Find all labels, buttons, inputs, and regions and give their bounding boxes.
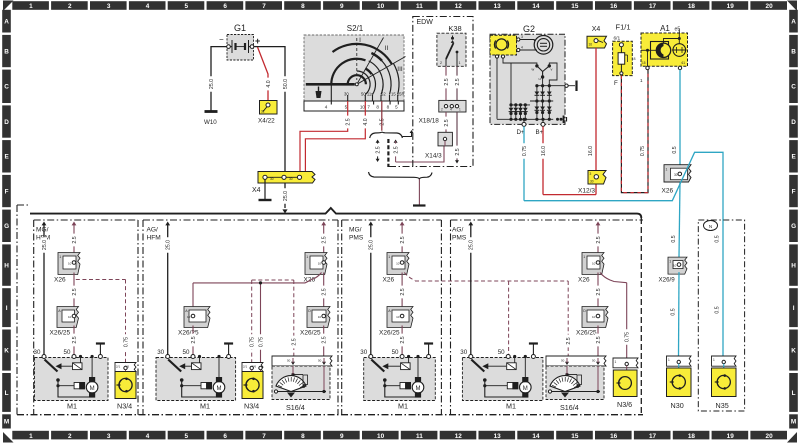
svg-text:1: 1: [388, 255, 390, 259]
svg-text:PMS: PMS: [452, 235, 467, 242]
svg-text:2: 2: [68, 3, 72, 10]
svg-text:X14/3: X14/3: [425, 153, 442, 160]
svg-text:2.5: 2.5: [292, 338, 298, 345]
svg-text:B: B: [791, 48, 796, 55]
svg-text:1: 1: [583, 255, 585, 259]
svg-text:X26: X26: [662, 188, 674, 195]
svg-text:0.5: 0.5: [715, 235, 721, 242]
svg-text:N: N: [709, 224, 712, 229]
svg-text:X4: X4: [592, 26, 601, 33]
svg-text:18: 18: [688, 433, 696, 440]
svg-text:0.75: 0.75: [258, 337, 264, 347]
svg-text:S2/1: S2/1: [347, 24, 364, 33]
svg-text:13: 13: [494, 3, 502, 10]
svg-text:16: 16: [610, 3, 618, 10]
svg-text:20: 20: [766, 433, 774, 440]
svg-text:D: D: [791, 119, 796, 126]
svg-text:X26/25: X26/25: [576, 330, 597, 337]
svg-text:2: 2: [441, 108, 443, 112]
svg-text:18: 18: [688, 3, 696, 10]
svg-text:7: 7: [367, 105, 370, 110]
svg-text:4.0: 4.0: [363, 118, 369, 125]
svg-text:10: 10: [396, 262, 400, 266]
svg-text:0.75: 0.75: [625, 332, 631, 342]
svg-text:F1/1: F1/1: [615, 23, 630, 32]
svg-text:1: 1: [29, 433, 33, 440]
svg-text:0.75: 0.75: [640, 146, 646, 156]
svg-text:16: 16: [610, 433, 618, 440]
svg-text:0.5: 0.5: [715, 306, 721, 313]
svg-text:PMS: PMS: [349, 235, 364, 242]
svg-text:4: 4: [146, 3, 150, 10]
svg-text:EDW: EDW: [417, 19, 434, 26]
svg-text:10: 10: [377, 433, 385, 440]
svg-text:30: 30: [344, 92, 349, 97]
svg-text:A: A: [791, 18, 796, 25]
svg-text:G2: G2: [523, 24, 535, 34]
svg-text:14: 14: [532, 3, 540, 10]
svg-text:M: M: [4, 419, 9, 426]
svg-text:1: 1: [59, 255, 61, 259]
svg-text:2.5: 2.5: [191, 336, 197, 343]
svg-text:19: 19: [727, 3, 735, 10]
svg-text:4: 4: [450, 108, 452, 112]
svg-text:G1: G1: [234, 23, 246, 33]
svg-text:25.0: 25.0: [283, 191, 289, 201]
svg-text:25.0: 25.0: [42, 240, 48, 250]
svg-text:II: II: [385, 45, 389, 52]
svg-text:2.5: 2.5: [72, 336, 78, 343]
svg-text:25.0: 25.0: [469, 240, 475, 250]
svg-text:5: 5: [185, 433, 189, 440]
svg-text:F: F: [792, 188, 796, 195]
svg-text:X26/25: X26/25: [50, 330, 71, 337]
svg-text:1: 1: [615, 360, 617, 364]
svg-text:25.0: 25.0: [209, 79, 215, 89]
svg-text:F: F: [5, 188, 9, 195]
svg-text:2.5: 2.5: [566, 337, 572, 344]
svg-text:S16/4: S16/4: [286, 403, 305, 412]
svg-text:3: 3: [107, 3, 111, 10]
svg-text:15 15R: 15 15R: [391, 92, 405, 97]
svg-text:2: 2: [68, 433, 72, 440]
svg-text:X26/9: X26/9: [659, 277, 676, 284]
svg-text:2.5: 2.5: [322, 236, 328, 243]
svg-text:6: 6: [223, 433, 227, 440]
svg-text:30: 30: [674, 173, 678, 177]
svg-text:X26: X26: [578, 277, 590, 284]
svg-text:M1: M1: [506, 402, 516, 411]
svg-text:25.0: 25.0: [369, 240, 375, 250]
svg-text:D: D: [308, 309, 311, 313]
svg-text:1: 1: [29, 3, 33, 10]
svg-text:10: 10: [68, 315, 72, 319]
svg-text:12: 12: [455, 3, 463, 10]
svg-text:5: 5: [395, 105, 398, 110]
svg-text:X26: X26: [54, 277, 66, 284]
svg-text:10: 10: [592, 315, 596, 319]
svg-text:2.5: 2.5: [400, 288, 406, 295]
svg-text:9: 9: [340, 3, 344, 10]
svg-text:1: 1: [306, 255, 308, 259]
svg-text:6: 6: [223, 3, 227, 10]
svg-text:N35: N35: [716, 401, 729, 410]
svg-text:D: D: [583, 309, 586, 313]
svg-text:1: 1: [640, 78, 643, 83]
svg-text:X26: X26: [383, 277, 395, 284]
svg-text:10: 10: [318, 315, 322, 319]
svg-text:50: 50: [498, 349, 505, 356]
svg-text:30: 30: [157, 349, 164, 356]
svg-text:3: 3: [521, 35, 523, 39]
svg-text:30: 30: [460, 349, 467, 356]
svg-text:2.5: 2.5: [72, 236, 78, 243]
svg-text:4: 4: [146, 433, 150, 440]
svg-text:10: 10: [673, 264, 677, 268]
svg-text:10: 10: [396, 315, 400, 319]
svg-text:2.5: 2.5: [380, 118, 386, 125]
svg-text:2.5: 2.5: [455, 148, 461, 155]
svg-text:16: 16: [589, 43, 593, 47]
svg-text:11: 11: [416, 3, 423, 10]
svg-text:2.5: 2.5: [393, 146, 399, 153]
svg-text:AG/: AG/: [452, 227, 464, 234]
svg-text:30: 30: [360, 349, 367, 356]
svg-text:2.5: 2.5: [400, 236, 406, 243]
svg-text:50: 50: [287, 359, 291, 363]
svg-text:2.5: 2.5: [444, 119, 450, 126]
svg-text:2.5: 2.5: [72, 288, 78, 295]
svg-text:2.5: 2.5: [596, 336, 602, 343]
svg-text:+: +: [255, 36, 260, 46]
svg-text:10: 10: [592, 262, 596, 266]
svg-text:2/1: 2/1: [243, 364, 248, 368]
svg-text:19: 19: [727, 433, 735, 440]
svg-text:4: 4: [325, 105, 328, 110]
svg-text:20: 20: [766, 3, 774, 10]
svg-text:6/1: 6/1: [614, 36, 621, 42]
svg-text:H: H: [4, 262, 9, 269]
svg-text:W10: W10: [204, 119, 217, 126]
svg-text:14: 14: [532, 433, 540, 440]
svg-text:0.75: 0.75: [522, 146, 528, 156]
svg-text:M1: M1: [67, 402, 77, 411]
svg-text:2.5: 2.5: [596, 288, 602, 295]
svg-text:X26/25: X26/25: [300, 330, 321, 337]
svg-text:M1: M1: [200, 402, 210, 411]
svg-text:8: 8: [301, 3, 305, 10]
svg-text:G: G: [791, 223, 796, 230]
svg-text:11: 11: [416, 433, 423, 440]
svg-text:X18/18: X18/18: [419, 118, 440, 125]
svg-text:1: 1: [669, 260, 671, 264]
svg-text:M: M: [523, 386, 528, 392]
svg-text:X4: X4: [252, 187, 261, 194]
svg-text:1: 1: [459, 108, 461, 112]
svg-text:0.5: 0.5: [671, 308, 677, 315]
svg-text:61: 61: [682, 61, 686, 65]
svg-text:8: 8: [301, 433, 305, 440]
svg-text:G: G: [4, 223, 9, 230]
svg-text:I: I: [359, 37, 361, 44]
svg-text:8: 8: [387, 105, 390, 110]
svg-text:2.5: 2.5: [322, 288, 328, 295]
svg-text:2.5: 2.5: [596, 236, 602, 243]
svg-text:15: 15: [571, 3, 579, 10]
svg-text:52: 52: [381, 92, 386, 97]
svg-text:30: 30: [289, 177, 293, 181]
svg-text:9: 9: [340, 433, 344, 440]
svg-text:15: 15: [571, 433, 579, 440]
svg-text:M: M: [217, 386, 222, 392]
svg-text:0.5: 0.5: [671, 235, 677, 242]
svg-text:30: 30: [34, 349, 41, 356]
svg-text:A1: A1: [660, 24, 670, 33]
svg-text:AG/: AG/: [147, 227, 159, 234]
svg-text:25.0: 25.0: [166, 240, 172, 250]
svg-text:13: 13: [494, 433, 502, 440]
svg-text:E: E: [791, 154, 796, 161]
svg-text:7: 7: [262, 3, 266, 10]
svg-text:50 11x: 50 11x: [361, 92, 374, 97]
svg-text:X26/25: X26/25: [379, 330, 400, 337]
svg-text:1: 1: [666, 168, 668, 172]
svg-text:50: 50: [64, 349, 71, 356]
svg-text:8: 8: [634, 57, 636, 61]
svg-text:M1: M1: [398, 402, 408, 411]
svg-text:2/1: 2/1: [116, 364, 121, 368]
svg-text:10: 10: [377, 3, 385, 10]
svg-text:2.5: 2.5: [346, 118, 352, 125]
svg-text:u: u: [539, 77, 541, 81]
svg-text:L: L: [792, 390, 796, 397]
svg-text:B: B: [4, 48, 9, 55]
svg-text:M: M: [791, 419, 796, 426]
svg-text:C: C: [791, 84, 796, 91]
svg-text:30: 30: [270, 177, 274, 181]
svg-text:17: 17: [649, 433, 657, 440]
svg-text:MG/: MG/: [349, 227, 362, 234]
svg-text:0.75: 0.75: [249, 337, 255, 347]
svg-text:III: III: [397, 66, 403, 73]
svg-text:10: 10: [187, 315, 191, 319]
svg-text:15: 15: [642, 61, 646, 65]
svg-text:N30: N30: [671, 401, 684, 410]
svg-text:32: 32: [261, 110, 265, 114]
svg-text:F: F: [614, 80, 618, 87]
svg-text:N3/6: N3/6: [617, 400, 632, 409]
svg-text:X12/3: X12/3: [578, 188, 595, 195]
svg-text:A: A: [4, 18, 9, 25]
svg-text:50.0: 50.0: [283, 79, 289, 89]
svg-text:50: 50: [592, 359, 596, 363]
svg-text:HFM: HFM: [147, 235, 161, 242]
svg-text:50: 50: [183, 349, 190, 356]
svg-text:50: 50: [318, 359, 322, 363]
svg-text:5: 5: [185, 3, 189, 10]
svg-text:H: H: [791, 262, 796, 269]
svg-text:3: 3: [107, 433, 111, 440]
svg-text:16.0: 16.0: [541, 146, 547, 156]
svg-text:1: 1: [713, 358, 715, 362]
svg-text:K: K: [4, 347, 9, 354]
svg-text:N3/4: N3/4: [244, 402, 259, 411]
svg-text:16.0: 16.0: [588, 146, 594, 156]
svg-text:D: D: [4, 119, 9, 126]
svg-text:I: I: [793, 305, 795, 312]
svg-text:10: 10: [68, 262, 72, 266]
svg-text:4: 4: [521, 46, 523, 50]
svg-text:S16/4: S16/4: [560, 403, 579, 412]
svg-text:v: v: [551, 68, 553, 72]
svg-text:M: M: [416, 386, 421, 392]
svg-text:1: 1: [668, 358, 670, 362]
svg-text:C: C: [4, 84, 9, 91]
svg-text:7: 7: [262, 433, 266, 440]
svg-text:17: 17: [649, 3, 657, 10]
svg-text:2.5: 2.5: [400, 336, 406, 343]
svg-text:30: 30: [590, 180, 594, 184]
svg-text:3: 3: [590, 172, 592, 176]
svg-text:E: E: [4, 154, 9, 161]
svg-text:N3/4: N3/4: [117, 402, 132, 411]
svg-text:2.5: 2.5: [375, 146, 381, 153]
svg-text:10: 10: [360, 105, 366, 110]
svg-text:K38: K38: [448, 24, 461, 33]
svg-text:K: K: [791, 347, 796, 354]
svg-text:2: 2: [440, 61, 442, 65]
svg-text:X4/22: X4/22: [258, 118, 275, 125]
svg-text:2.5: 2.5: [455, 78, 461, 85]
svg-text:I: I: [6, 305, 8, 312]
svg-text:2.5: 2.5: [322, 336, 328, 343]
svg-text:50: 50: [392, 349, 399, 356]
svg-text:−: −: [219, 35, 224, 44]
svg-text:M: M: [90, 386, 95, 392]
svg-text:50: 50: [561, 359, 565, 363]
svg-text:MG/: MG/: [36, 227, 49, 234]
svg-text:0.5: 0.5: [672, 146, 678, 153]
svg-text:2.5: 2.5: [444, 78, 450, 85]
svg-text:8: 8: [376, 105, 379, 110]
svg-text:4.0: 4.0: [266, 80, 272, 87]
svg-text:0.75: 0.75: [123, 337, 129, 347]
svg-text:12: 12: [455, 433, 463, 440]
svg-text:w: w: [532, 68, 535, 72]
svg-text:10: 10: [318, 262, 322, 266]
svg-text:1: 1: [459, 61, 461, 65]
svg-text:L: L: [5, 390, 9, 397]
